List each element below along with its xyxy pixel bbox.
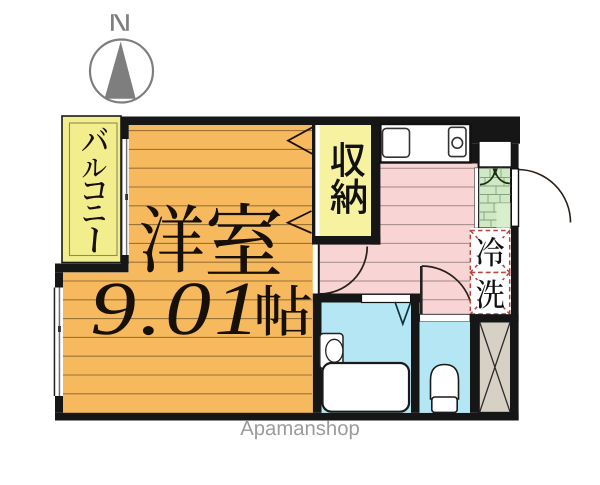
svg-text:9.01: 9.01	[90, 266, 263, 351]
svg-text:Apamanshop: Apamanshop	[240, 418, 360, 440]
